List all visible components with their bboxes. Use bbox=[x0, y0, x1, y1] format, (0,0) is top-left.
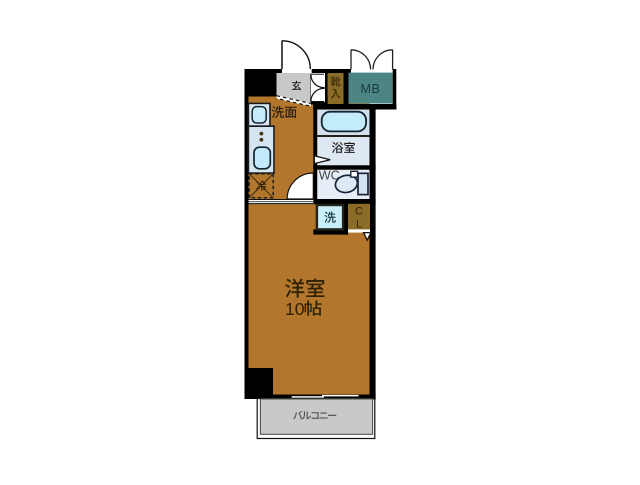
svg-text:10: 10 bbox=[285, 299, 305, 319]
svg-text:L: L bbox=[356, 219, 362, 231]
svg-text:MB: MB bbox=[360, 82, 380, 96]
svg-text:C: C bbox=[355, 206, 363, 218]
